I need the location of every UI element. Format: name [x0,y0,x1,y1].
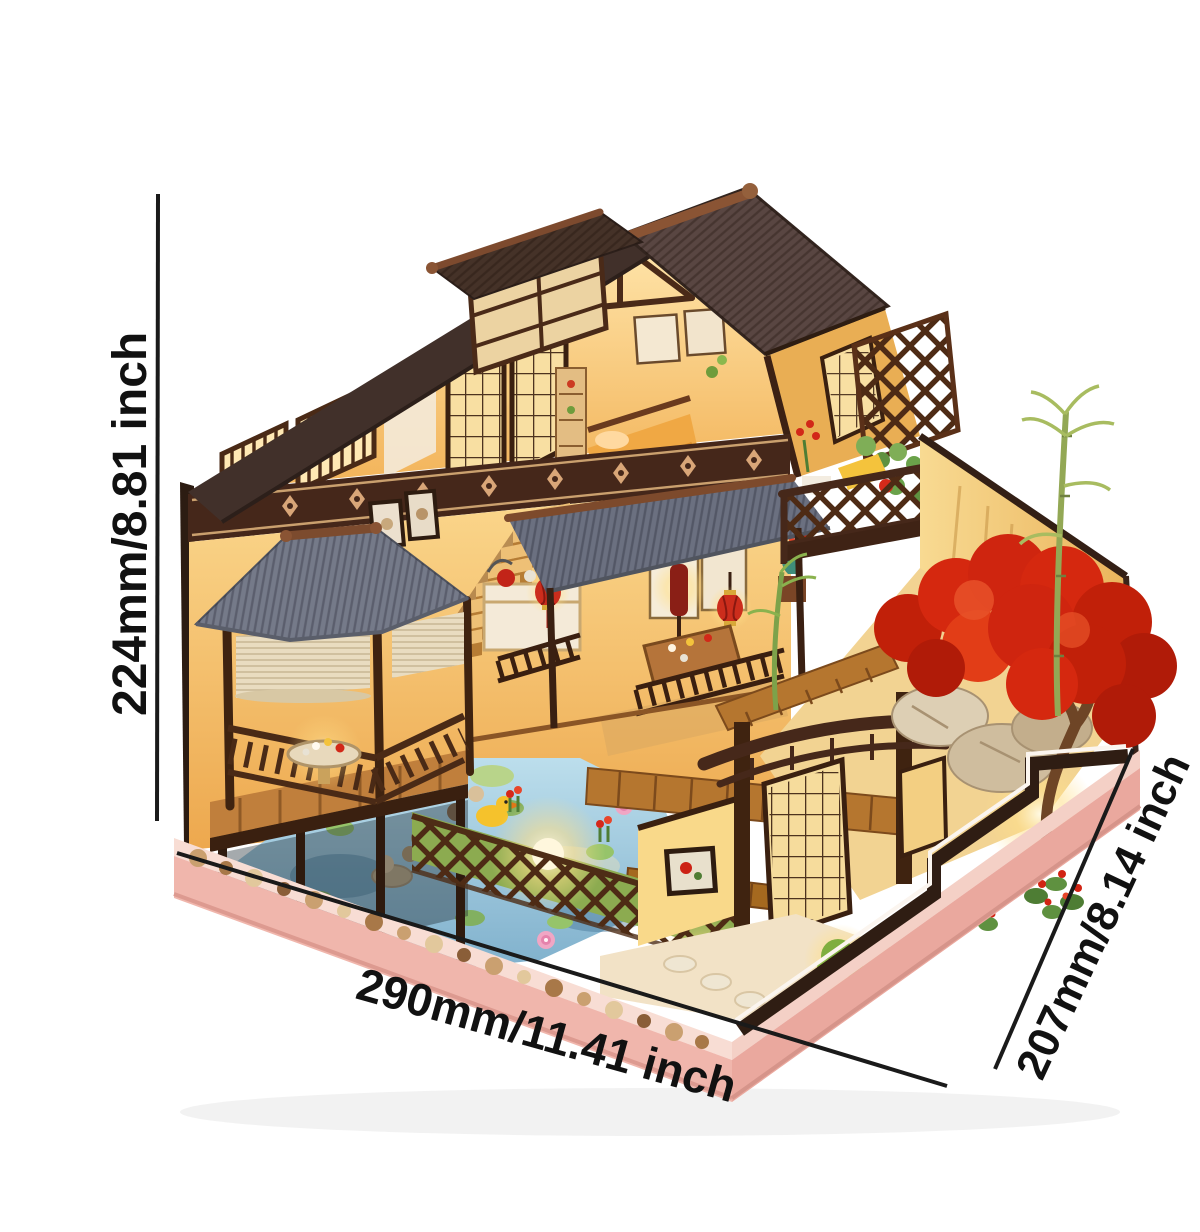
dollhouse [174,183,1177,1102]
dollhouse-dimension-image: 224mm/8.81 inch 290mm/11.41 inch 207mm/8… [40,16,1200,1216]
product-photo: 224mm/8.81 inch 290mm/11.41 inch 207mm/8… [40,16,1200,1216]
height-dimension-label: 224mm/8.81 inch [104,332,157,716]
height-dimension-line [157,194,158,821]
gazebo-table [286,714,362,790]
ground-shadow [180,1088,1120,1136]
